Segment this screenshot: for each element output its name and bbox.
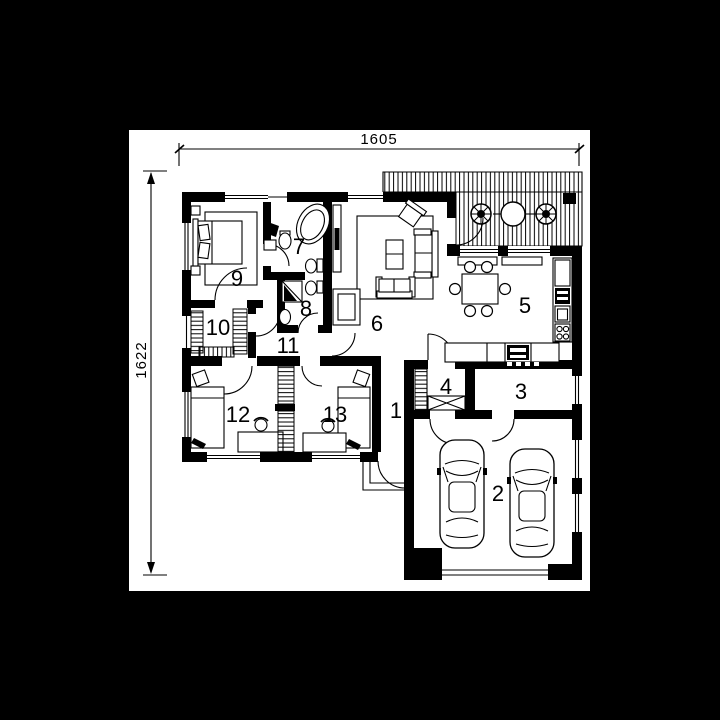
room-label-9: 9 xyxy=(231,266,243,291)
loveseat-icon xyxy=(376,277,415,298)
window xyxy=(572,440,582,478)
room-label-11: 11 xyxy=(277,333,300,358)
wardrobe-icon xyxy=(278,366,294,404)
sofa-icon xyxy=(414,229,438,278)
room-label-1: 1 xyxy=(390,398,402,423)
terrace-post xyxy=(563,193,576,204)
room-label-4: 4 xyxy=(440,374,452,399)
bed-icon xyxy=(193,219,242,266)
nightstand-icon xyxy=(191,206,200,215)
room-label-10: 10 xyxy=(206,315,230,340)
window xyxy=(460,246,498,256)
window xyxy=(182,316,191,348)
window xyxy=(572,494,582,532)
tv-cabinet-icon xyxy=(333,205,341,272)
terrace-chair-icon xyxy=(536,204,556,224)
window xyxy=(225,192,268,202)
floor-plan: 1605 1622 xyxy=(0,0,720,720)
room-label-8: 8 xyxy=(300,296,312,321)
kitchen-island-icon xyxy=(445,343,559,362)
room-label-7: 7 xyxy=(293,234,305,259)
kitchen-counter-icon xyxy=(553,258,572,342)
window xyxy=(182,223,191,270)
dimension-left-label: 1622 xyxy=(133,341,150,378)
desk-icon xyxy=(238,432,283,452)
washbasin-icon xyxy=(279,231,291,249)
wardrobe-icon xyxy=(233,309,247,354)
terrace-chair-icon xyxy=(471,204,491,224)
window xyxy=(572,376,582,404)
car-icon xyxy=(437,440,487,548)
toilet-icon xyxy=(306,259,324,273)
room-label-2: 2 xyxy=(492,481,504,506)
wardrobe-icon xyxy=(278,411,294,452)
fridge-icon xyxy=(555,260,570,286)
room-label-12: 12 xyxy=(226,402,250,427)
wardrobe-icon xyxy=(199,347,234,357)
terrace-table-icon xyxy=(501,202,525,226)
window xyxy=(348,192,383,202)
coffee-table-icon xyxy=(386,240,403,269)
nightstand-icon xyxy=(191,266,200,275)
dimension-top-label: 1605 xyxy=(360,131,397,148)
sideboard-icon xyxy=(502,257,542,265)
window xyxy=(182,392,191,437)
wardrobe-icon xyxy=(415,369,427,410)
fireplace-icon xyxy=(333,289,360,325)
room-label-3: 3 xyxy=(515,379,527,404)
terrace-decking xyxy=(383,172,582,192)
sink-icon xyxy=(555,306,570,322)
desk-icon xyxy=(303,433,346,452)
cabinet-icon xyxy=(264,240,276,250)
car-icon xyxy=(507,449,557,557)
stove-icon xyxy=(555,324,570,341)
window xyxy=(207,452,260,462)
room-label-5: 5 xyxy=(519,293,531,318)
bidet-icon xyxy=(306,281,324,295)
window xyxy=(508,246,550,256)
window xyxy=(268,192,287,202)
room-label-13: 13 xyxy=(323,402,347,427)
window xyxy=(312,452,360,462)
chair-icon xyxy=(254,418,268,431)
washbasin-icon xyxy=(280,310,291,325)
room-label-6: 6 xyxy=(371,311,383,336)
